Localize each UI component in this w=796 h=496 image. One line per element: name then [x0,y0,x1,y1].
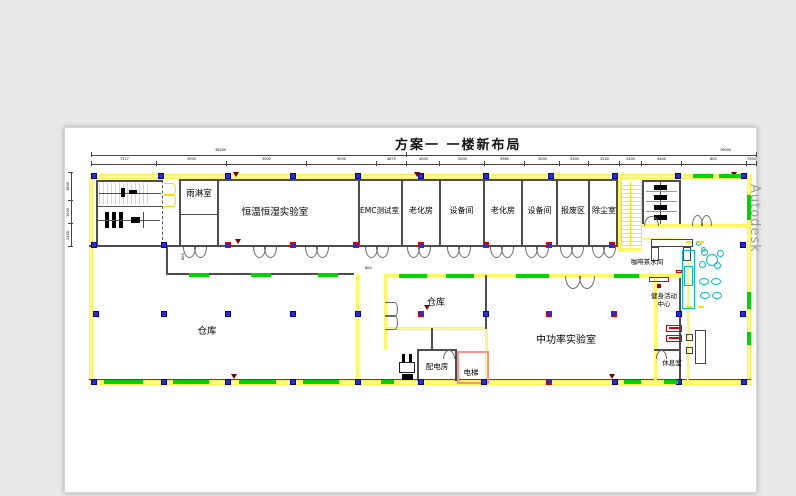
lounge-chair [700,292,710,299]
room-label-equip-2: 设备间 [522,205,557,216]
chair [717,250,724,257]
room-door-arc [316,247,329,258]
column-marker [483,311,489,317]
green-wall-segment [747,195,751,220]
column-marker [93,311,99,317]
green-wall-segment [516,274,549,278]
stairwell-landing [618,248,642,251]
vending-mark [676,270,682,273]
green-wall-segment [239,380,276,384]
column-marker [676,311,682,317]
dimension-tick [641,161,642,166]
chair [699,261,706,268]
column-marker [740,311,746,317]
room-door-arc [376,247,389,258]
room-label-elevator: 电梯 [458,367,484,378]
small-warehouse-right [485,275,487,329]
dimension-line [91,155,757,156]
dimension-text: 9000 [337,157,346,161]
rainroom-divider [179,214,217,215]
toilet2-fixture [654,195,667,200]
dimension-text: 3000 [187,157,196,161]
dimension-text: 7517 [120,157,129,161]
wall-left [89,174,93,385]
small-warehouse-bottom [384,327,486,330]
dimension-text: 1500 [66,208,70,217]
dimension-line [71,172,72,246]
green-wall-segment [251,273,271,277]
plug-body [399,362,415,373]
column-marker [481,379,487,385]
toilet2-fixture [654,185,667,190]
room-label-midpower: 中功率实验室 [515,331,617,346]
column-marker [675,173,681,179]
red-flag-marker [609,374,615,379]
room-label-powerdist: 配电房 [419,361,455,372]
dimension-text: 2400 [66,231,70,240]
dimension-tick [91,152,92,157]
block-top [96,180,163,182]
column-marker [290,173,296,179]
room-door-arc [418,247,431,258]
dimension-tick [68,223,73,224]
dimension-tick [91,161,92,166]
room-label-aging-1: 老化房 [402,205,440,216]
plug-prong [409,354,412,362]
green-wall-segment [303,380,339,384]
toilet2-fixture [654,205,667,210]
green-wall-segment [664,380,678,384]
dimension-tick [406,161,407,166]
chair [714,262,721,269]
corridor-wall-left [166,247,168,273]
dimension-text: 7500 [747,157,756,161]
room-door-arc [264,247,277,258]
room-label-dust: 除尘室 [589,205,619,216]
room-label-coffee: 咖啡茶水间 [627,256,667,266]
dimension-text: 3300 [570,157,579,161]
green-wall-segment [747,292,751,309]
column-marker [161,242,167,248]
column-marker [612,379,618,385]
toilet-partition [143,212,144,228]
column-marker [546,311,552,317]
room-door-arc [603,247,616,258]
toilet2-top [642,180,681,182]
dimension-text: 2400 [626,157,635,161]
column-marker [612,173,618,179]
room-label-warehouse-big: 仓库 [185,323,229,337]
red-flag-marker [424,305,430,310]
lounge-chair [712,292,722,299]
green-wall-segment [624,380,641,384]
column-marker [91,173,97,179]
dimension-text: 3240 [600,157,609,161]
room-label-rain: 雨淋室 [177,187,221,199]
dimension-tick [439,161,440,166]
green-wall-segment [189,273,209,277]
plug-prong [402,354,405,362]
chair [701,249,708,256]
room-label-warehouse-small: 仓库 [415,295,457,308]
column-marker [290,311,296,317]
dimension-tick [306,161,307,166]
rest-chair [686,347,693,354]
yellow-dashed-line [686,241,704,243]
column-marker [355,379,361,385]
cad-sheet: 方案一 一楼新布局 Autodesk [64,127,757,493]
toilet2-partition [646,211,677,212]
rest-table [695,330,706,364]
floor-plan: 雨淋室 恒温恒湿实验室 EMC测试室 老化房 设备间 老化房 设备间 报废区 除… [65,128,758,494]
green-wall-segment [693,174,713,178]
dimension-tick [681,161,682,166]
room-door-arc [194,247,207,258]
column-marker [225,173,231,179]
dimension-text: 3960 [500,157,509,161]
toilet2-left [642,180,644,226]
room-label-fitness: 健身活动中心 [649,292,679,308]
column-marker [741,173,747,179]
rest-chair [686,334,693,341]
red-flag-marker [414,172,420,177]
dimension-tick [746,161,747,166]
stairs-left-mark [129,190,137,194]
dimension-text: 1800 [66,182,70,191]
column-marker [225,379,231,385]
red-flag-marker [233,172,239,177]
column-marker [91,379,97,385]
column-marker [290,242,296,248]
powerroom-door-arc [443,350,455,359]
entry-door-arc [164,194,176,207]
green-wall-segment [104,380,143,384]
block-divider [96,206,163,207]
green-wall-segment [399,274,427,278]
room-door-arc [501,247,514,258]
plug-base [402,374,413,380]
dimension-text: 38200 [215,148,226,152]
room-door-arc [458,247,471,258]
dimension-tick [524,161,525,166]
small-warehouse-door-arc [385,315,398,330]
column-marker [355,173,361,179]
dimension-tick [156,161,157,166]
midpower-door-arc [579,276,595,289]
treadmill-belt [669,327,679,329]
column-marker [225,242,231,248]
dimension-tick [68,200,73,201]
red-flag-marker [235,239,241,244]
small-warehouse-door-arc [385,302,398,317]
toilet2-partition [646,191,677,192]
column-marker [91,242,97,248]
column-marker [418,379,424,385]
room-door-arc [571,247,584,258]
green-wall-segment [318,273,338,277]
dimension-tick [756,161,757,166]
screenshot-root: { "title": "方案一 一楼新布局", "watermark": "Au… [0,0,796,496]
dimension-tick [406,152,407,157]
dimension-tick [226,161,227,166]
treadmill-belt [669,337,679,339]
room-label-humidity-lab: 恒温恒湿实验室 [217,204,333,218]
dimension-text: 5000 [458,157,467,161]
dimension-text: 4000 [419,157,428,161]
green-wall-segment [614,274,639,278]
green-wall-segment [381,380,394,384]
stairs-right-rail [630,182,631,246]
fitness-mark [657,284,661,288]
toilet-fixture [131,217,140,223]
column-marker [741,379,747,385]
block-bottom [89,245,163,247]
column-marker [483,242,489,248]
dimension-tick [619,161,620,166]
room-label-scrap: 报废区 [557,205,589,216]
fitness-left-wall [654,275,657,381]
room-label-aging-2: 老化房 [484,205,522,216]
warehouse-right-wall [356,274,359,381]
column-marker [740,242,746,248]
dimension-tick [756,152,757,157]
dimension-tick [68,246,73,247]
column-marker [158,173,164,179]
dimension-tick [484,161,485,166]
toilet-rail [98,220,160,221]
lounge-chair [711,278,721,285]
column-marker [483,173,489,179]
column-marker [355,311,361,317]
stub-wall [431,328,433,349]
dimension-line [91,164,757,165]
toilet2-right [679,180,681,226]
coffee-bar-shelf [684,266,693,286]
cornerroom-door-arc [701,215,712,226]
column-marker [548,173,554,179]
dimension-tick [68,172,73,173]
block-left [96,180,98,247]
column-marker [546,379,552,385]
column-marker [290,379,296,385]
column-marker [418,311,424,317]
column-marker [161,311,167,317]
room-door-arc [536,247,549,258]
red-flag-marker [231,374,237,379]
toilet2-partition [646,201,677,202]
dimension-text: 76000 [720,148,731,152]
roomband-top [179,179,618,181]
dimension-text: 3000 [538,157,547,161]
dimension-text: 4400 [657,157,666,161]
dimension-text: 3000 [262,157,271,161]
column-marker [611,311,617,317]
column-marker [353,242,359,248]
stairs-right [621,182,642,246]
stairs-left-mark [121,188,125,197]
lounge-chair [699,278,709,285]
green-wall-segment [719,174,741,178]
green-wall-segment [173,380,209,384]
dim-small-h: 800 [365,266,372,270]
dimension-text: 800 [710,157,717,161]
column-marker [225,311,231,317]
room-label-equip-1: 设备间 [440,205,483,216]
room-label-rest: 休息室 [659,357,685,367]
dimension-tick [588,161,589,166]
column-marker [161,379,167,385]
fitness-bench [649,277,669,282]
green-wall-segment [446,274,474,278]
room-label-emc: EMC测试室 [357,205,402,216]
dimension-tick [376,161,377,166]
green-wall-segment [747,332,751,345]
yellow-dashed-line [686,306,704,308]
dimension-text: 4875 [387,157,396,161]
dimension-tick [559,161,560,166]
block-right-dashed [162,180,163,245]
